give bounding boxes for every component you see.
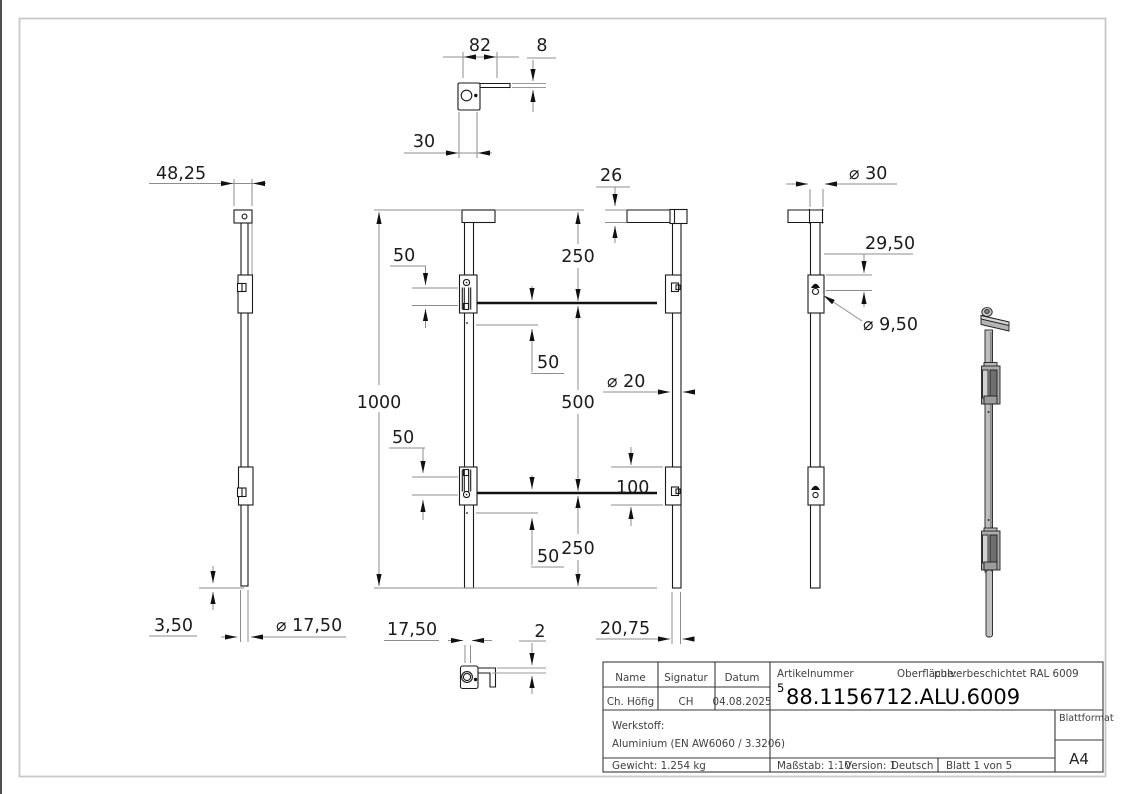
upper-guide-3d: [982, 363, 1001, 405]
dim-hole-diameter: ⌀ 9,50: [863, 315, 918, 335]
article-label: Artikelnummer: [777, 668, 854, 680]
dim-handle-thickness: 8: [536, 36, 547, 56]
signature-label: Signatur: [664, 672, 708, 684]
dim-inset-upper-left: 50: [393, 246, 415, 266]
sheet-value: Blatt 1 von 5: [946, 760, 1012, 772]
date-label: Datum: [725, 672, 760, 684]
upper-guide: [238, 275, 253, 313]
dim-guide-span: 500: [561, 393, 594, 413]
scale-value: Maßstab: 1:10: [777, 760, 851, 772]
dim-guide-height: 100: [616, 478, 649, 498]
article-number: 88.1156712.ALU.6009: [786, 685, 1020, 709]
lower-guide-3d: [982, 528, 1001, 570]
dim-handle-width: 82: [469, 36, 491, 56]
material-label: Werkstoff:: [612, 720, 664, 732]
dim-rod-diameter: ⌀ 20: [607, 372, 645, 392]
dim-inset-lower-left: 50: [392, 428, 414, 448]
format-value: A4: [1069, 750, 1089, 768]
title-block-text: Name Signatur Datum Ch. Höfig CH 04.08.2…: [607, 668, 1114, 772]
dim-tip-diameter: ⌀ 17,50: [276, 616, 342, 636]
dim-top-to-guide: 250: [561, 247, 594, 267]
drawing-canvas: 82 8 30 48,25: [0, 0, 1123, 794]
date-value: 04.08.2025: [713, 696, 772, 708]
format-label: Blattformat: [1059, 713, 1114, 724]
article-index: 5: [777, 681, 784, 695]
surface-value: pulverbeschichtet RAL 6009: [934, 668, 1079, 680]
dim-cap-width: 48,25: [156, 164, 206, 184]
view-bottom: 17,50 2: [384, 620, 546, 694]
lower-guide: [239, 467, 254, 505]
view-front: 1000 250 500 250 50 50 50 5: [357, 210, 657, 588]
rod-tip-3d: [986, 570, 993, 637]
view-isometric: [981, 308, 1009, 637]
dim-tip-offset: 3,50: [154, 616, 193, 636]
signature-value: CH: [679, 696, 694, 708]
lower-guide: [666, 467, 682, 505]
dim-guide-to-bottom: 250: [561, 539, 594, 559]
dim-knob-diameter: ⌀ 30: [849, 164, 887, 184]
version-value: Version: 1: [845, 760, 896, 772]
dim-bar-height: 26: [600, 166, 622, 186]
weight-value: Gewicht: 1.254 kg: [612, 760, 706, 772]
name-value: Ch. Höfig: [607, 696, 654, 708]
language-value: Deutsch: [891, 760, 933, 772]
dim-inset-upper-right: 50: [537, 353, 559, 373]
dim-hole-offset: 29,50: [865, 234, 915, 254]
view-side-right: ⌀ 30 29,50 ⌀ 9,50: [786, 164, 918, 588]
material-value: Aluminium (EN AW6060 / 3.3206): [612, 738, 785, 750]
name-label: Name: [615, 672, 645, 684]
upper-guide: [666, 275, 682, 313]
dim-total-length: 1000: [357, 393, 402, 413]
dim-bottom-offset: 17,50: [387, 620, 437, 640]
top-cap: [462, 210, 495, 223]
dim-handle-offset: 30: [413, 132, 435, 152]
drawing-page: 82 8 30 48,25: [0, 0, 1123, 794]
view-side: 48,25 3,50 ⌀ 17,50: [149, 164, 346, 642]
dim-inset-lower-right: 50: [537, 547, 559, 567]
view-top: 82 8 30: [404, 36, 556, 158]
view-rear: 26 ⌀ 20 100 20,75: [596, 166, 695, 644]
dim-rear-tip-offset: 20,75: [600, 619, 650, 639]
dim-lip-thickness: 2: [534, 622, 545, 642]
